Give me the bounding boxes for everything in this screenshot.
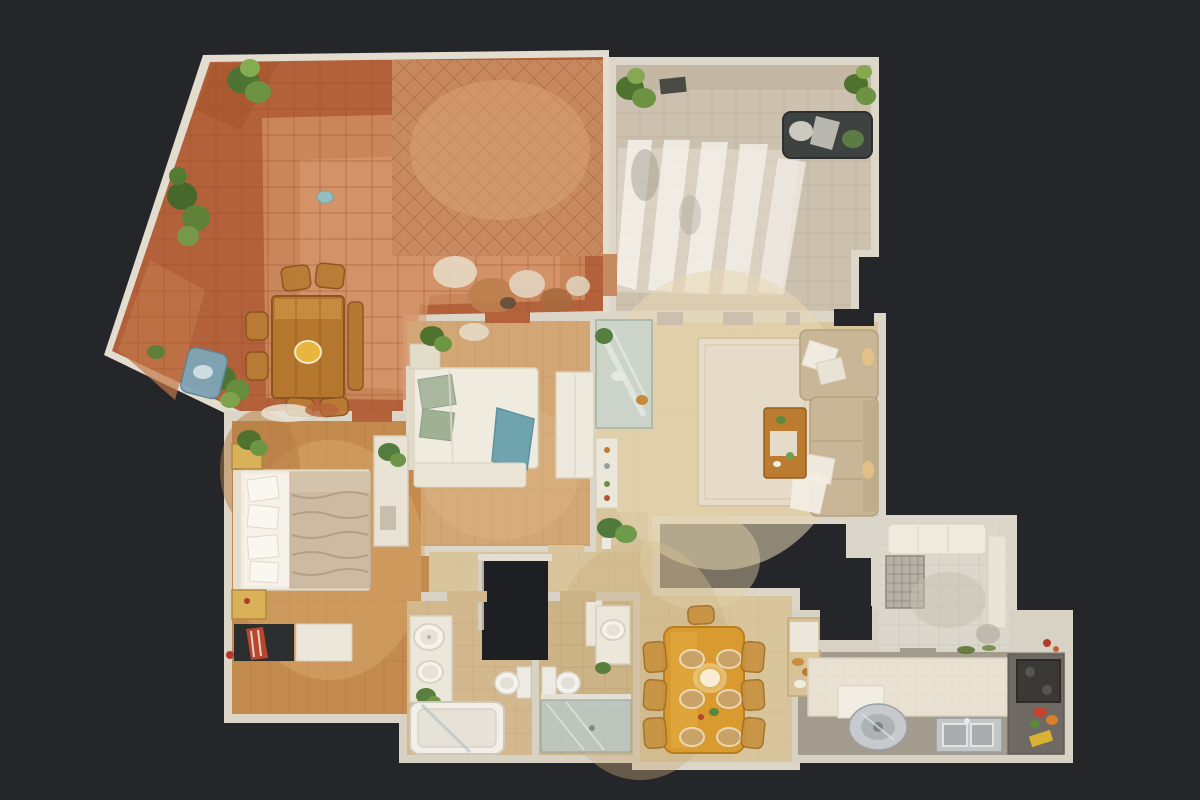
- bar-counter-top: [790, 622, 818, 652]
- master-foot-bench: [296, 624, 352, 661]
- terrace-clutter-dark: [500, 297, 516, 309]
- unscanned-closet-void: [482, 560, 548, 660]
- floorplan-canvas[interactable]: [0, 0, 1200, 800]
- door-gap-master-terrace: [352, 411, 392, 422]
- pantry-appliance: [888, 524, 986, 554]
- table-decor-cup: [773, 461, 781, 467]
- bath1-sink2-basin: [422, 665, 438, 679]
- produce-greens: [1030, 720, 1040, 728]
- terrace-clutter: [509, 270, 545, 298]
- toilet2-seat: [561, 677, 575, 689]
- shelf-item: [604, 447, 610, 453]
- plant-sunroom-left: [632, 88, 656, 108]
- console-decor: [611, 371, 625, 381]
- plant-terrace-small: [147, 345, 165, 359]
- pantry-connector-floor: [852, 516, 879, 552]
- placemat: [680, 690, 704, 708]
- plant-sunroom-right: [856, 87, 876, 105]
- stove-top: [1017, 660, 1060, 702]
- plant-terrace-top: [245, 81, 271, 103]
- sunroom-dark-item: [659, 77, 686, 95]
- hall-plant-vase: [602, 538, 611, 549]
- bath1-sink-drain: [427, 635, 431, 639]
- desk-plant: [390, 453, 406, 467]
- console-decor: [636, 395, 648, 405]
- shelf-item: [604, 495, 610, 501]
- sofa-plant: [842, 130, 864, 148]
- terrace-diagonal-sheen: [410, 80, 590, 220]
- wall-red-item: [226, 651, 234, 659]
- bar-bread: [792, 658, 804, 666]
- placemat: [717, 690, 741, 708]
- sink-faucet: [964, 718, 970, 724]
- master-pillow: [247, 535, 279, 560]
- dining-centerpiece: [699, 668, 721, 688]
- door-gap-bedroom2-terrace: [485, 312, 530, 323]
- master-wall-clutter: [305, 403, 339, 417]
- master-blanket-highlight: [290, 472, 370, 492]
- table-decor-plant: [786, 452, 794, 460]
- toilet1-seat: [500, 677, 514, 689]
- master-pillow: [249, 561, 278, 583]
- hall-plant: [615, 525, 637, 543]
- plant-terrace-left: [169, 167, 187, 185]
- door-gap-living-north: [657, 312, 683, 325]
- placemat: [680, 728, 704, 746]
- produce-orange: [1046, 715, 1058, 725]
- outdoor-bench: [348, 302, 363, 390]
- closet-void-edge: [478, 554, 552, 561]
- dining-decor-green: [709, 708, 719, 716]
- door-gap-living-north: [786, 312, 800, 325]
- door-gap-living-north: [723, 312, 753, 325]
- dining-chair: [741, 641, 766, 673]
- sunroom-top-band: [616, 65, 871, 89]
- outdoor-chair: [280, 264, 311, 292]
- produce-tomato: [1033, 707, 1047, 717]
- pantry-floor-shadow: [976, 624, 1000, 644]
- desk-chair: [380, 506, 396, 530]
- console-plant: [595, 328, 613, 344]
- kitchen-north-wall-edge: [818, 640, 874, 650]
- counter-herbs: [957, 646, 975, 654]
- wall-sconce-glow: [862, 348, 874, 366]
- door-gap-master-hall: [421, 556, 429, 592]
- terrace-clutter: [433, 256, 477, 288]
- stove-burner: [1042, 685, 1052, 695]
- door-gap-bath1: [447, 591, 487, 602]
- master-plant: [250, 440, 268, 456]
- dining-decor-red: [698, 714, 704, 720]
- toilet2-tank: [542, 667, 556, 698]
- master-nightstand: [232, 590, 266, 619]
- master-pillow: [247, 476, 280, 502]
- dining-chair: [741, 679, 765, 710]
- bedroom2-plant: [434, 336, 452, 352]
- tree-shadow: [679, 195, 701, 235]
- outdoor-chair: [246, 312, 268, 340]
- bedroom2-pillow-sage: [419, 409, 454, 441]
- door-gap-pantry-kitchen: [900, 648, 936, 656]
- bedroom2-clutter: [459, 323, 489, 341]
- plant-sunroom-left: [627, 68, 645, 84]
- outdoor-chair: [246, 352, 268, 380]
- plant-terrace-top: [240, 59, 260, 77]
- plant-terrace-left: [177, 226, 199, 246]
- pantry-floor-shadow: [910, 572, 986, 628]
- table-decor-plant: [776, 416, 786, 424]
- floorplan-3d-dollhouse-view[interactable]: [0, 0, 1200, 800]
- master-headboard: [233, 470, 241, 590]
- floor-wash: [640, 510, 760, 610]
- terrace-clutter: [566, 276, 590, 296]
- sofa-back-cushions: [863, 400, 878, 512]
- terrace-clutter: [540, 288, 572, 312]
- stove-burner: [1025, 667, 1035, 677]
- bedroom2-teal-throw: [492, 408, 534, 470]
- shower-drain: [589, 725, 595, 731]
- bath2-sink-basin: [606, 624, 620, 636]
- master-wall-clutter: [261, 404, 313, 422]
- dining-chair: [740, 717, 765, 749]
- door-gap-bath2: [560, 591, 596, 602]
- shelf-item: [604, 481, 610, 487]
- sofa-cushion: [789, 121, 813, 141]
- dining-chair: [688, 605, 715, 624]
- outdoor-chair: [315, 263, 345, 290]
- sink-basin: [971, 724, 993, 746]
- lounge-chair-towel: [193, 365, 213, 379]
- sink-basin: [943, 724, 967, 746]
- bar-plate: [794, 680, 806, 688]
- door-gap-bedroom2-hall: [548, 545, 584, 554]
- nightstand-red-item: [244, 598, 250, 604]
- master-pillow: [247, 504, 279, 529]
- shelf-item: [604, 463, 610, 469]
- pantry-shelf-strip: [988, 536, 1006, 628]
- wall-sconce-glow: [862, 461, 874, 479]
- door-gap-terrace-sunroom: [603, 254, 617, 296]
- terrace-drain-aqua: [317, 191, 333, 203]
- placemat: [680, 650, 704, 668]
- counter-herbs: [982, 645, 996, 651]
- outdoor-table-bowl: [295, 341, 321, 363]
- dining-chair: [643, 717, 667, 748]
- wall-break-dark: [834, 309, 874, 326]
- kitchen-exterior-notch: [820, 606, 872, 642]
- placemat: [717, 728, 741, 746]
- dining-chair: [643, 641, 668, 673]
- plant-terrace-bottom: [220, 392, 240, 408]
- coffee-table-tray: [770, 431, 797, 456]
- bedroom2-foot-bench: [414, 463, 526, 487]
- produce-red: [1043, 639, 1051, 647]
- placemat: [717, 650, 741, 668]
- bath2-plant: [595, 662, 611, 674]
- tree-shadow: [631, 149, 659, 201]
- outdoor-table-highlight: [275, 299, 341, 319]
- produce-red: [1053, 646, 1059, 652]
- plant-sunroom-right: [856, 65, 872, 79]
- dining-chair: [643, 679, 667, 710]
